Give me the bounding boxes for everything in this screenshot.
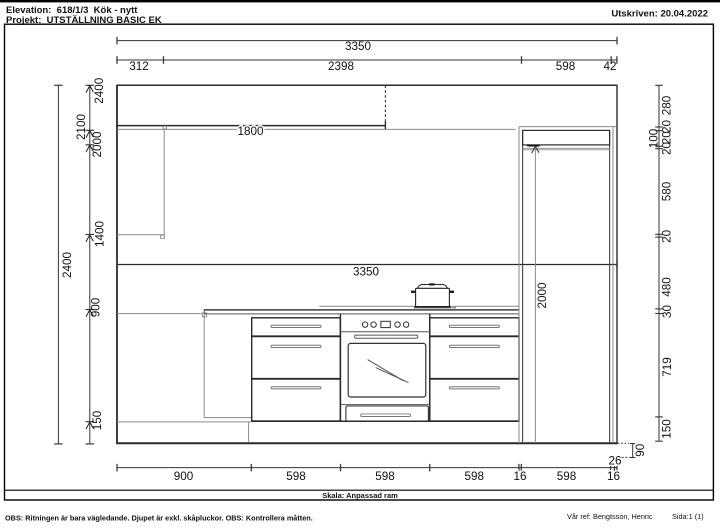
svg-text:42: 42 [603, 60, 616, 73]
svg-text:598: 598 [465, 470, 485, 483]
svg-text:280: 280 [661, 95, 674, 115]
svg-text:150: 150 [661, 419, 674, 439]
svg-text:16: 16 [607, 470, 620, 483]
svg-text:312: 312 [129, 60, 149, 73]
svg-text:598: 598 [556, 60, 576, 73]
svg-text:480: 480 [661, 277, 674, 297]
svg-text:20: 20 [661, 120, 674, 134]
svg-text:1400: 1400 [93, 221, 106, 248]
svg-text:Utskriven: 20.04.2022: Utskriven: 20.04.2022 [611, 9, 708, 20]
svg-text:2100: 2100 [75, 114, 88, 141]
svg-text:3350: 3350 [345, 40, 372, 53]
svg-text:598: 598 [375, 470, 395, 483]
svg-text:90: 90 [634, 443, 647, 457]
svg-text:Vår ref: Bengtsson, Henric: Vår ref: Bengtsson, Henric [567, 512, 653, 521]
svg-text:Skala: Anpassad ram: Skala: Anpassad ram [322, 491, 398, 500]
svg-text:1800: 1800 [237, 125, 264, 138]
svg-text:20: 20 [661, 229, 674, 243]
svg-text:3350: 3350 [353, 265, 380, 278]
svg-text:100: 100 [647, 128, 660, 148]
svg-text:598: 598 [286, 470, 306, 483]
svg-text:Elevation: 618/1/3 Kök - nyt: Elevation: 618/1/3 Kök - nytt [6, 5, 138, 16]
svg-text:2000: 2000 [91, 131, 104, 158]
svg-text:2400: 2400 [61, 252, 74, 279]
svg-text:598: 598 [557, 470, 577, 483]
svg-text:30: 30 [661, 305, 674, 319]
svg-text:OBS: Ritningen är bara vägleda: OBS: Ritningen är bara vägledande. Djupe… [5, 514, 313, 523]
svg-text:2398: 2398 [328, 60, 354, 73]
svg-text:20: 20 [661, 142, 674, 156]
svg-text:16: 16 [513, 470, 526, 483]
svg-text:719: 719 [661, 357, 674, 377]
svg-text:900: 900 [174, 470, 194, 483]
svg-text:150: 150 [91, 410, 104, 430]
svg-text:Sida:1 (1): Sida:1 (1) [672, 512, 704, 521]
svg-text:2000: 2000 [536, 282, 549, 309]
svg-text:2400: 2400 [93, 77, 106, 104]
svg-text:26: 26 [608, 454, 621, 467]
svg-text:900: 900 [90, 297, 103, 317]
svg-text:580: 580 [661, 181, 674, 201]
